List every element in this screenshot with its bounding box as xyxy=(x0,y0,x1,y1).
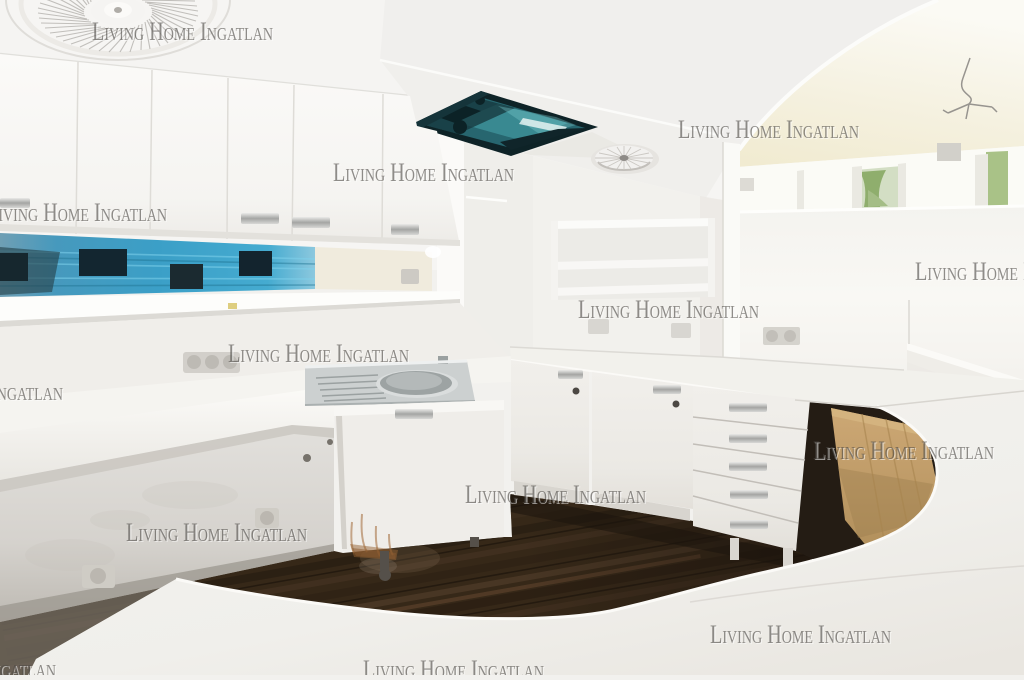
svg-text:Living Home Ingatlan: Living Home Ingatlan xyxy=(578,295,759,324)
svg-text:Living Home Ingatlan: Living Home Ingatlan xyxy=(0,377,63,406)
svg-text:Living Home Ingatlan: Living Home Ingatlan xyxy=(333,158,514,187)
svg-text:Living Home Ingatlan: Living Home Ingatlan xyxy=(813,436,994,465)
svg-text:Living Home Ingatlan: Living Home Ingatlan xyxy=(92,17,273,46)
svg-text:Living Home Ingatlan: Living Home Ingatlan xyxy=(126,518,307,547)
svg-text:Living Home Ingatlan: Living Home Ingatlan xyxy=(0,654,56,675)
svg-text:Living Home Ingatlan: Living Home Ingatlan xyxy=(228,339,409,368)
svg-text:Living Home Ingatlan: Living Home Ingatlan xyxy=(710,620,891,649)
svg-text:Living Home Ingatlan: Living Home Ingatlan xyxy=(678,115,859,144)
svg-text:Living Home Ingatlan: Living Home Ingatlan xyxy=(465,480,646,509)
svg-text:Living Home Ingatlan: Living Home Ingatlan xyxy=(363,655,544,675)
svg-text:Living Home Ingatlan: Living Home Ingatlan xyxy=(0,198,167,227)
svg-text:Living Home Ingatlan: Living Home Ingatlan xyxy=(915,257,1024,286)
